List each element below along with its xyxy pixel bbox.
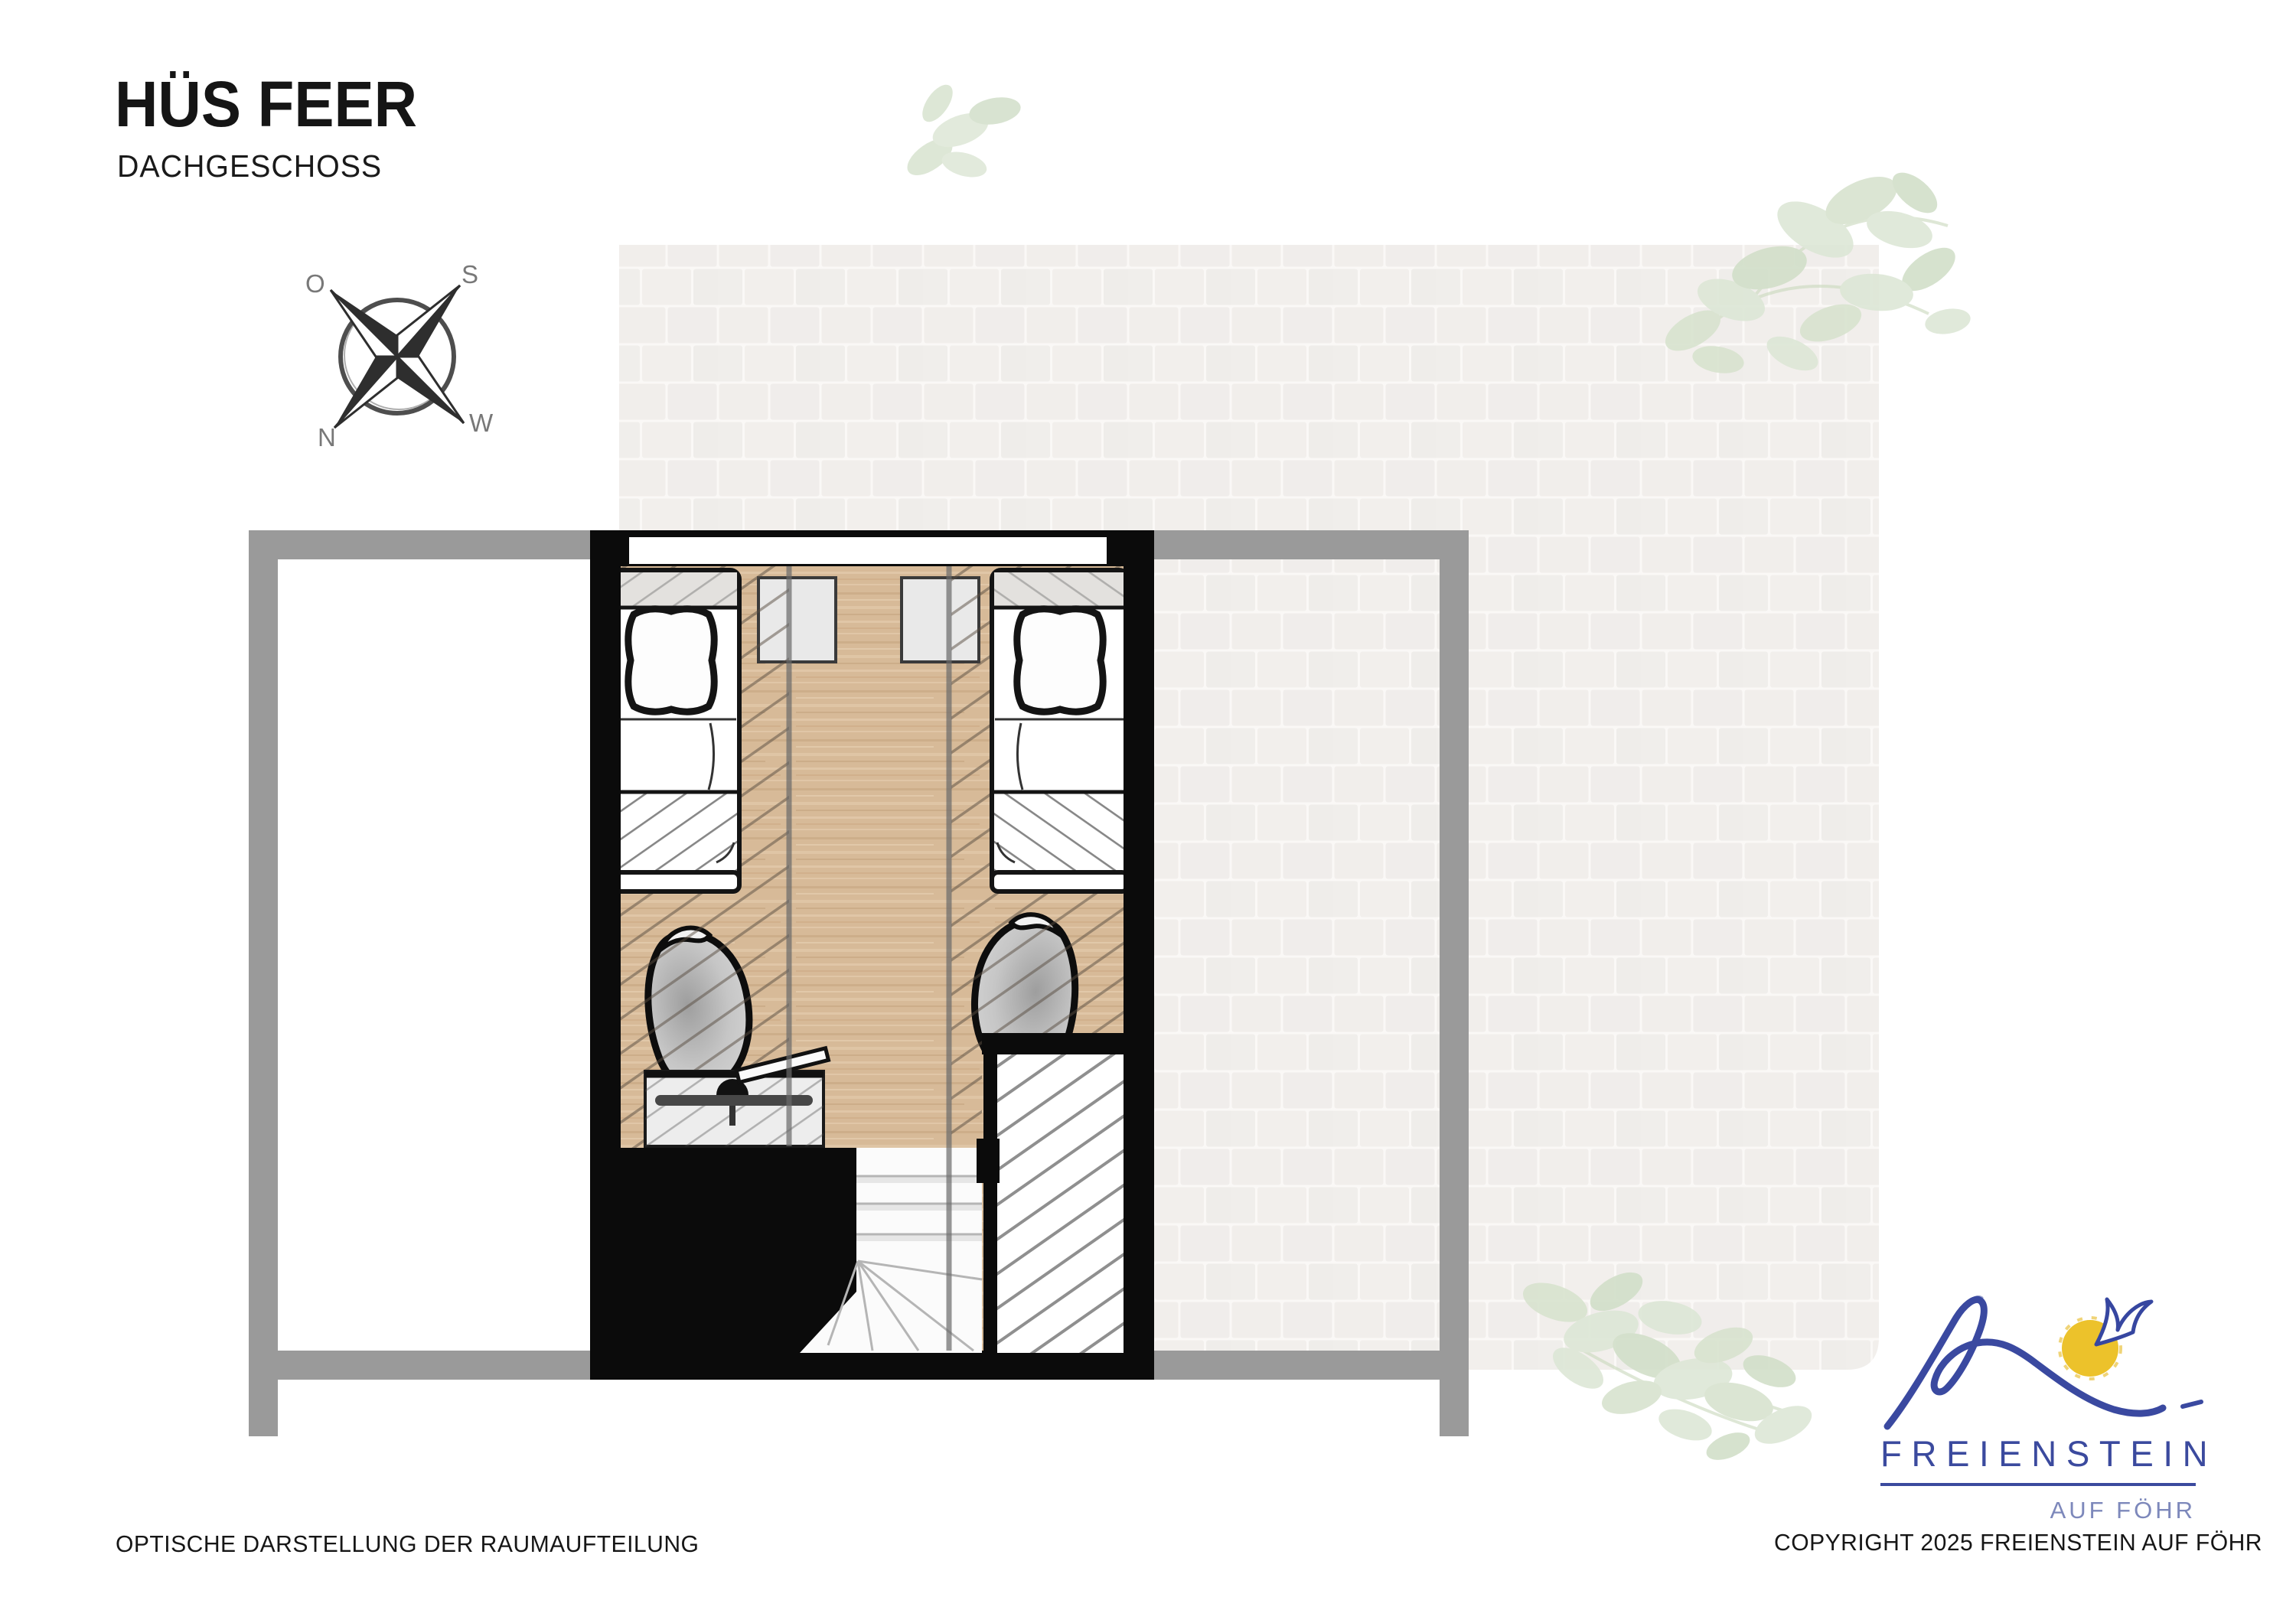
bed-right (992, 570, 1128, 891)
compass-label-south: S (461, 260, 478, 289)
foliage-top-center-icon (901, 80, 1022, 182)
compass-label-east: O (305, 269, 325, 298)
logo-artwork (1887, 1296, 2201, 1426)
roof-window-band (629, 537, 1107, 564)
logo-tagline-text: AUF FÖHR (1880, 1497, 2196, 1524)
page-subtitle: DACHGESCHOSS (117, 148, 382, 184)
footer-copyright: COPYRIGHT 2025 FREIENSTEIN AUF FÖHR (1774, 1529, 2262, 1556)
logo-brand-text: FREIENSTEIN (1880, 1432, 2188, 1475)
footer-disclaimer: OPTISCHE DARSTELLUNG DER RAUMAUFTEILUNG (116, 1530, 699, 1558)
compass-label-north: N (318, 423, 336, 452)
wave-icon (1887, 1296, 2201, 1426)
wall-bottom (590, 1351, 1154, 1380)
seagull-icon (2096, 1299, 2151, 1344)
page-title: HÜS FEER (115, 67, 417, 142)
bed-left (603, 570, 739, 891)
attic-room (590, 530, 1154, 1380)
compass-label-west: W (469, 409, 493, 438)
floorplan-page: HÜS FEER DACHGESCHOSS O S N W OPTISCHE D… (0, 0, 2296, 1623)
floorplan-drawing (0, 0, 2296, 1623)
logo-underline (1880, 1483, 2196, 1486)
compass-icon (331, 285, 464, 428)
